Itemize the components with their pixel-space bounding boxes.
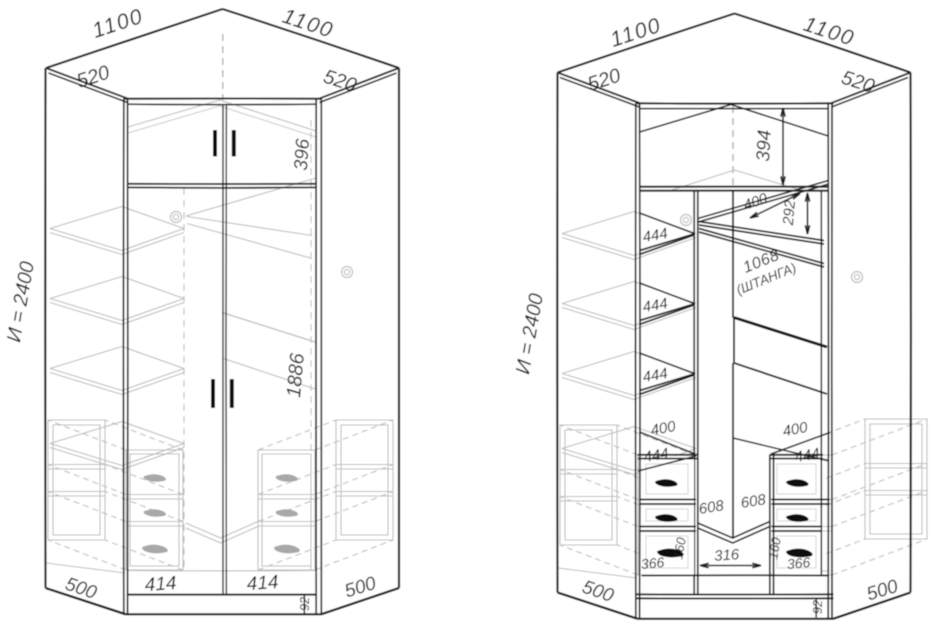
svg-text:92: 92 <box>811 600 825 614</box>
svg-text:414: 414 <box>246 572 279 595</box>
svg-text:292: 292 <box>780 199 799 227</box>
svg-text:1886: 1886 <box>283 351 309 398</box>
svg-text:396: 396 <box>291 138 314 172</box>
svg-text:394: 394 <box>753 129 776 162</box>
svg-text:366: 366 <box>786 554 811 572</box>
svg-text:366: 366 <box>640 554 665 572</box>
svg-text:316: 316 <box>714 546 741 565</box>
svg-text:414: 414 <box>144 573 177 596</box>
svg-text:92: 92 <box>298 597 312 611</box>
